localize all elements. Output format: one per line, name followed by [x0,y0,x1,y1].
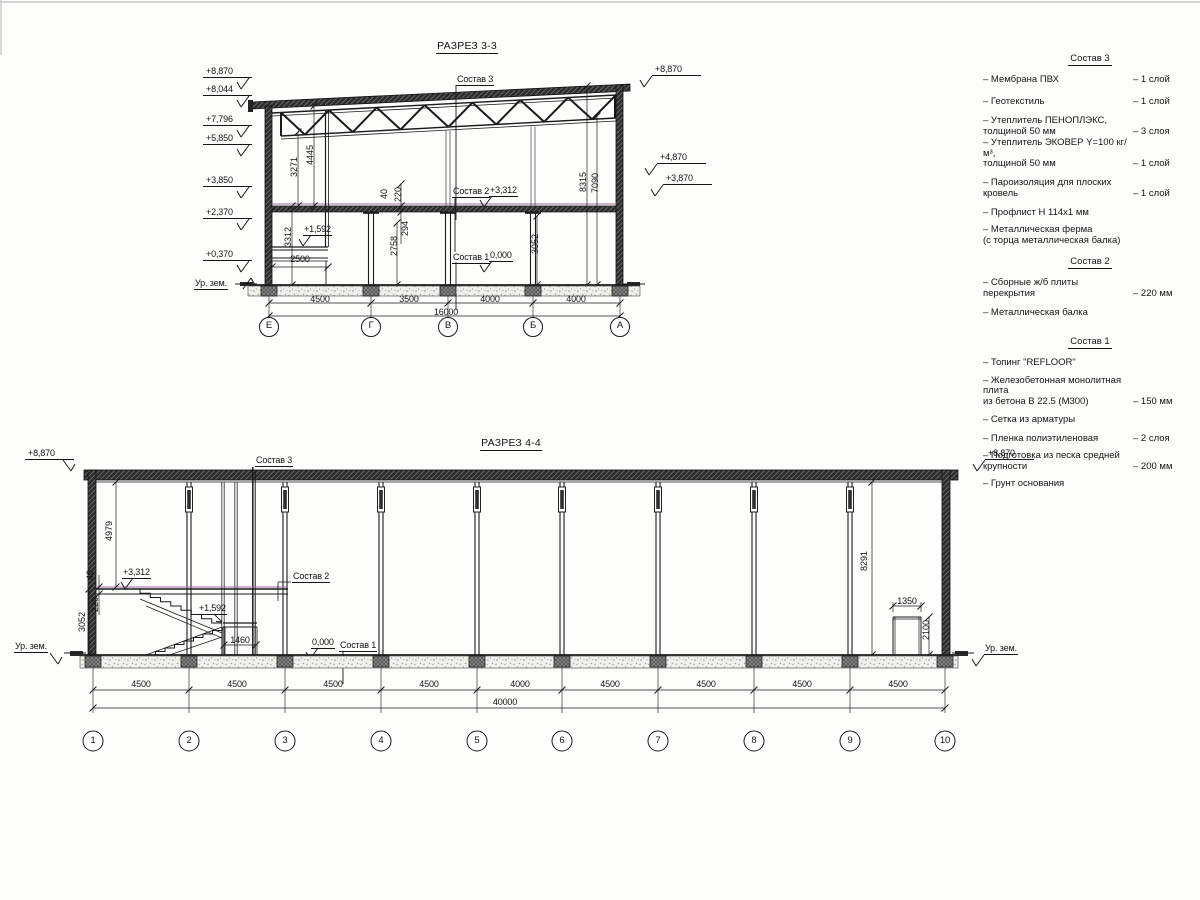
dim-2500: 2500 [290,254,309,264]
ground-level-label: Ур. зем. [14,641,48,653]
callout-sostav3: Состав 3 [456,74,494,86]
callout-level-1592: +1,592 [303,224,332,236]
level-mark: +3,850 [203,175,252,187]
legend-heading: Состав 1 [983,337,1197,348]
grid-axis-label: 9 [847,736,852,747]
dim-bay: 4500 [310,294,329,304]
grid-axis-label: 3 [282,736,287,747]
legend-item: – Профлист Н 114х1 мм [983,208,1197,219]
grid-axis-label: А [617,321,623,332]
grid-axis-label: Е [266,321,272,332]
grid-axis-label: 7 [655,736,660,747]
dim-bay: 4500 [227,679,246,689]
level-mark: +3,870 [663,173,712,185]
dim-294: 294 [400,221,410,236]
legend-item: – Сетка из арматуры [983,415,1197,426]
dim-bay: 4500 [131,679,150,689]
dim-bay: 4500 [323,679,342,689]
dim-40: 40 [379,189,389,199]
legend-item: – Утеплитель ПЕНОПЛЭКС, толщиной 50 мм– … [983,116,1197,138]
legend-item: – Металлическая балка [983,308,1197,319]
level-mark: +0,370 [203,249,252,261]
dim-7090: 7090 [590,173,600,193]
level-mark: +7,796 [203,114,252,126]
dim-bay: 4500 [696,679,715,689]
grid-axis-label: 8 [751,736,756,747]
dim-bay: 4000 [566,294,585,304]
callout-sostav3: Состав 3 [255,455,293,467]
callout-level-1592: +1,592 [198,603,227,615]
dim-2758: 2758 [389,236,399,256]
legend-heading: Состав 2 [983,257,1197,268]
grid-axis-label: 5 [474,736,479,747]
dim-total: 40000 [493,697,517,707]
dim-bay: 3500 [399,294,418,304]
dim-bay: 4000 [510,679,529,689]
legend-item: – Металлическая ферма (с торца металличе… [983,225,1197,247]
grid-axis-label: 6 [559,736,564,747]
ground-level-label: Ур. зем. [984,643,1018,655]
level-mark: +4,870 [657,152,706,164]
dim-bay: 4500 [792,679,811,689]
level-mark: +5,850 [203,133,252,145]
dim-3312: 3312 [283,227,293,247]
legend-item: – Мембрана ПВХ– 1 слой [983,75,1197,86]
dim-1460: 1460 [230,635,249,645]
callout-sostav1: Состав 1 [339,640,377,652]
grid-axis-label: 1 [90,736,95,747]
callout-sostav2: Состав 2 [452,186,490,198]
grid-axis-label: Б [530,321,536,332]
dim-8315: 8315 [578,172,588,192]
materials-legend: Состав 3 – Мембрана ПВХ– 1 слой – Геотек… [983,54,1197,490]
legend-item: – Пленка полиэтиленовая– 2 слоя [983,434,1197,445]
dim-220: 220 [393,187,403,202]
level-mark: +8,870 [25,448,74,460]
dim-220: 220 [90,597,100,612]
dim-3052: 3052 [530,234,540,254]
level-mark: +8,870 [203,66,252,78]
level-mark: +8,044 [203,84,252,96]
grid-axis-label: 10 [940,736,950,747]
dim-1350: 1350 [897,596,916,606]
grid-axis-label: Г [369,321,374,332]
level-mark: +2,370 [203,207,252,219]
dim-bay: 4500 [888,679,907,689]
dim-2100: 2100 [921,620,931,640]
level-mark: +8,870 [652,64,701,76]
dim-total: 16000 [434,307,458,317]
dim-8291: 8291 [859,551,869,571]
callout-sostav2: Состав 2 [292,571,330,583]
legend-item: – Топинг "REFLOOR" [983,358,1197,369]
grid-axis-label: 4 [378,736,383,747]
section44-title: РАЗРЕЗ 4-4 [480,437,542,451]
dim-3271: 3271 [289,157,299,177]
grid-axis-label: 2 [186,736,191,747]
dim-bay: 4500 [419,679,438,689]
callout-level-3312: +3,312 [489,185,518,197]
callout-level-3312: +3,312 [122,567,151,579]
callout-level-0: 0,000 [489,250,513,262]
dim-4979: 4979 [104,521,114,541]
legend-item: – Пароизоляция для плоских кровель– 1 сл… [983,178,1197,200]
legend-item: – Геотекстиль– 1 слой [983,97,1197,108]
legend-heading: Состав 3 [983,54,1197,65]
legend-item: – Грунт основания [983,479,1197,490]
dim-bay: 4000 [480,294,499,304]
dim-4445: 4445 [305,145,315,165]
legend-item: – Сборные ж/б плиты перекрытия– 220 мм [983,278,1197,300]
section33-title: РАЗРЕЗ 3-3 [436,40,498,54]
dim-40: 40 [85,570,95,580]
callout-level-0: 0,000 [311,637,335,649]
drawing-sheet: РАЗРЕЗ 3-3 +8,870 +8,044 +7,796 +5,850 +… [0,0,1200,900]
dim-bay: 4500 [600,679,619,689]
ground-level-label: Ур. зем. [194,278,228,290]
legend-item: – Подготовка из песка средней крупности–… [983,451,1197,473]
callout-sostav1: Состав 1 [452,252,490,264]
grid-axis-label: В [445,321,451,332]
dim-3052: 3052 [77,612,87,632]
legend-item: – Утеплитель ЭКОВЕР Y=100 кг/м³, толщино… [983,138,1197,171]
legend-item: – Железобетонная монолитная плита из бет… [983,376,1197,409]
